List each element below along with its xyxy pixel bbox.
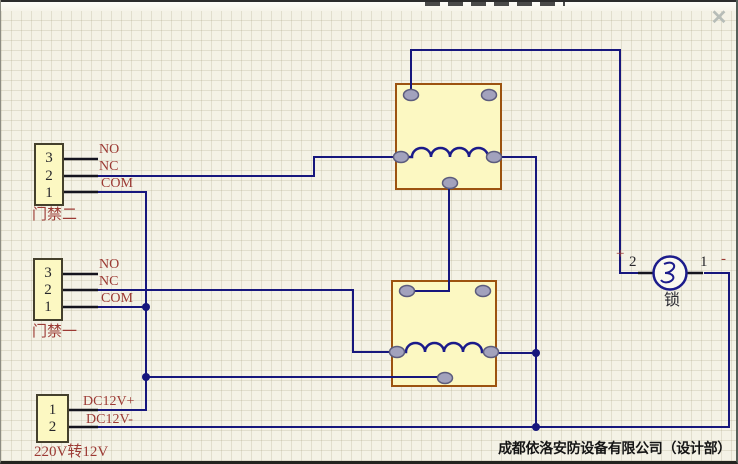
power-pin-number: 2: [36, 419, 69, 435]
wire-lock-minus-to-dc12v-minus: [98, 273, 729, 427]
lock-pin1-label: 1: [700, 255, 708, 270]
relay-bottom-pad-tl: [400, 286, 415, 297]
pin-stubs-group: [63, 159, 703, 427]
lock-name: 锁: [664, 292, 680, 309]
wire-access2-nc-to-relay-top-coil: [98, 157, 398, 176]
access1-name: 门禁一: [32, 324, 77, 340]
relay-top-pad-coil-right: [487, 152, 502, 163]
viewer-window: ✕: [0, 0, 738, 464]
access1-signal-no: NO: [99, 257, 119, 272]
relay-top-pad-coil-left: [394, 152, 409, 163]
wire-relay-top-to-relay-bottom: [411, 186, 449, 291]
wire-coil-return-vertical: [495, 157, 536, 427]
relay-bottom-coil-icon: [399, 343, 489, 352]
access2-name: 门禁二: [32, 207, 77, 223]
relay-bottom-pad-bottom: [438, 373, 453, 384]
access1-pin-number: 3: [33, 265, 63, 281]
junction-dot: [142, 303, 150, 311]
relay-top-pad-tl: [404, 90, 419, 101]
window-top-edge: [1, 0, 736, 2]
power-name: 220V转12V: [34, 444, 108, 460]
junctions-group: [142, 303, 540, 431]
window-top-band: [1, 2, 736, 11]
access1-signal-com: COM: [101, 291, 133, 306]
titlebar-text-fragment: [425, 0, 565, 6]
close-icon[interactable]: ✕: [706, 6, 732, 30]
access2-pin-number: 3: [34, 150, 64, 166]
wire-relay-top-to-lock-plus: [411, 50, 642, 273]
wire-access1-nc-to-relay-bottom-coil: [98, 290, 394, 352]
access2-pin-number: 1: [34, 185, 64, 201]
relay-bottom-pad-coil-right: [484, 347, 499, 358]
relay-bottom-pad-tr: [476, 286, 491, 297]
lock-pin2-label: 2: [629, 255, 637, 270]
relay-top-pad-bottom: [443, 178, 458, 189]
power-signal-plus: DC12V+: [83, 394, 134, 409]
relay-top-pad-tr: [482, 90, 497, 101]
access1-pin-number: 2: [33, 282, 63, 298]
access2-signal-no: NO: [99, 142, 119, 157]
access1-pin-number: 1: [33, 299, 63, 315]
junction-dot: [532, 349, 540, 357]
access2-signal-nc: NC: [99, 159, 118, 174]
lock-minus-label: -: [721, 252, 726, 267]
junction-dot: [142, 373, 150, 381]
wires-group: [98, 50, 729, 427]
pads-group: [390, 90, 502, 384]
relay-top-coil-icon: [408, 148, 492, 157]
power-signal-minus: DC12V-: [86, 412, 133, 427]
junction-dot: [532, 423, 540, 431]
company-credit: 成都依洛安防设备有限公司（设计部）: [498, 438, 731, 458]
lock-plus-label: +: [616, 247, 624, 262]
access2-pin-number: 2: [34, 168, 64, 184]
access2-signal-com: COM: [101, 176, 133, 191]
power-pin-number: 1: [36, 402, 69, 418]
lock-symbol: [654, 257, 687, 290]
relay-bottom-pad-coil-left: [390, 347, 405, 358]
access1-signal-nc: NC: [99, 274, 118, 289]
